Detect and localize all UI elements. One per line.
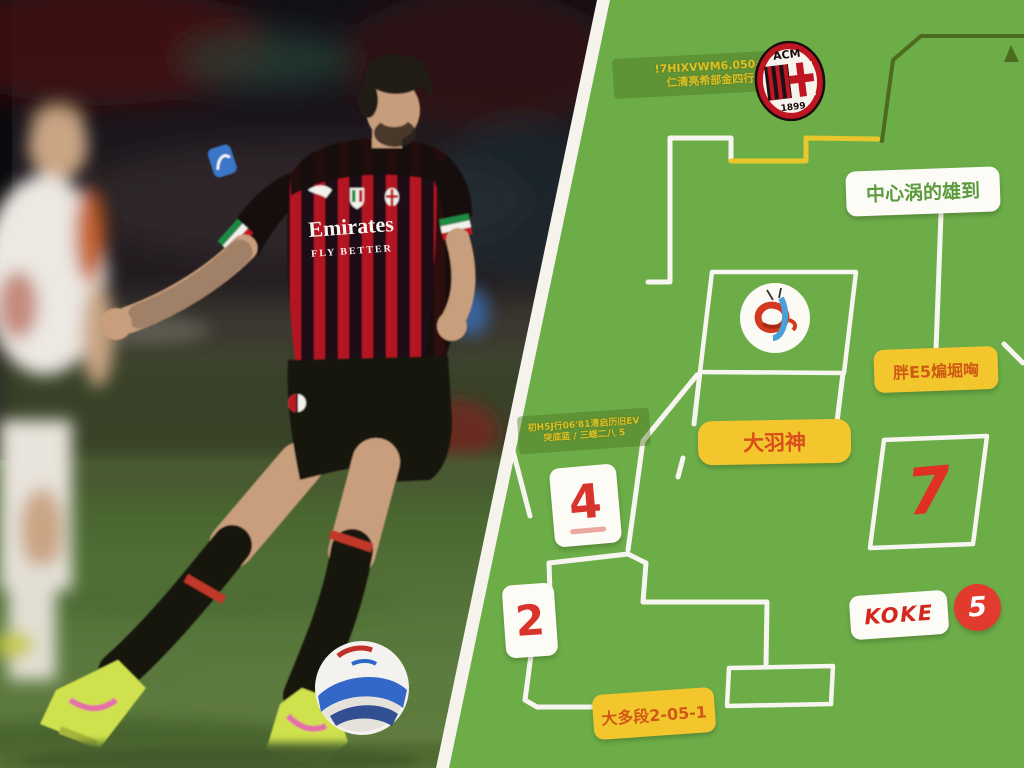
player-name-label-text: 大羽神 — [743, 426, 807, 457]
foreground-grass — [0, 742, 610, 768]
number-badge-5: 5 — [952, 582, 1002, 632]
right-hand — [100, 308, 132, 340]
number-box-2: 2 — [502, 582, 559, 658]
right-yellow-label: 胖E5煸堀哅 — [873, 346, 998, 393]
center-white-label-text: 中心涡的雄到 — [866, 176, 981, 207]
serie-a-match-ball — [315, 641, 409, 735]
mid-ghost-label: 初H5J行06'81清启历旧EV 突底蓝 / 三嵯二八 5 — [517, 407, 651, 454]
player-name-label: 大羽神 — [698, 419, 852, 466]
left-hand — [437, 311, 467, 341]
number-4: 4 — [567, 477, 604, 527]
koke-pill: KOKE — [849, 590, 950, 641]
badge-5-text: 5 — [967, 591, 988, 623]
bottom-yellow-label: 大多段2-05-1 — [592, 687, 717, 740]
yellow-path-segment — [731, 138, 878, 161]
number-2: 2 — [514, 595, 547, 646]
center-white-label: 中心涡的雄到 — [845, 166, 1000, 216]
mini-crest-icon — [385, 188, 399, 206]
thumbnail-canvas: Emirates FLY BETTER — [0, 0, 1024, 768]
triangle-marker-icon — [1004, 45, 1019, 62]
number-7: 7 — [886, 445, 971, 539]
ac-milan-crest-icon: ACM 1899 — [749, 36, 830, 126]
shorts-crest-icon — [288, 394, 306, 412]
club-crest-circle-icon — [739, 282, 811, 354]
right-yellow-label-text: 胖E5煸堀哅 — [893, 356, 980, 383]
left-forearm — [454, 240, 464, 318]
koke-text: KOKE — [864, 601, 935, 630]
bottom-yellow-label-text: 大多段2-05-1 — [600, 698, 707, 729]
small-node-frame — [727, 666, 833, 706]
number-box-4: 4 — [549, 463, 623, 548]
olive-path-segment — [882, 36, 1024, 141]
